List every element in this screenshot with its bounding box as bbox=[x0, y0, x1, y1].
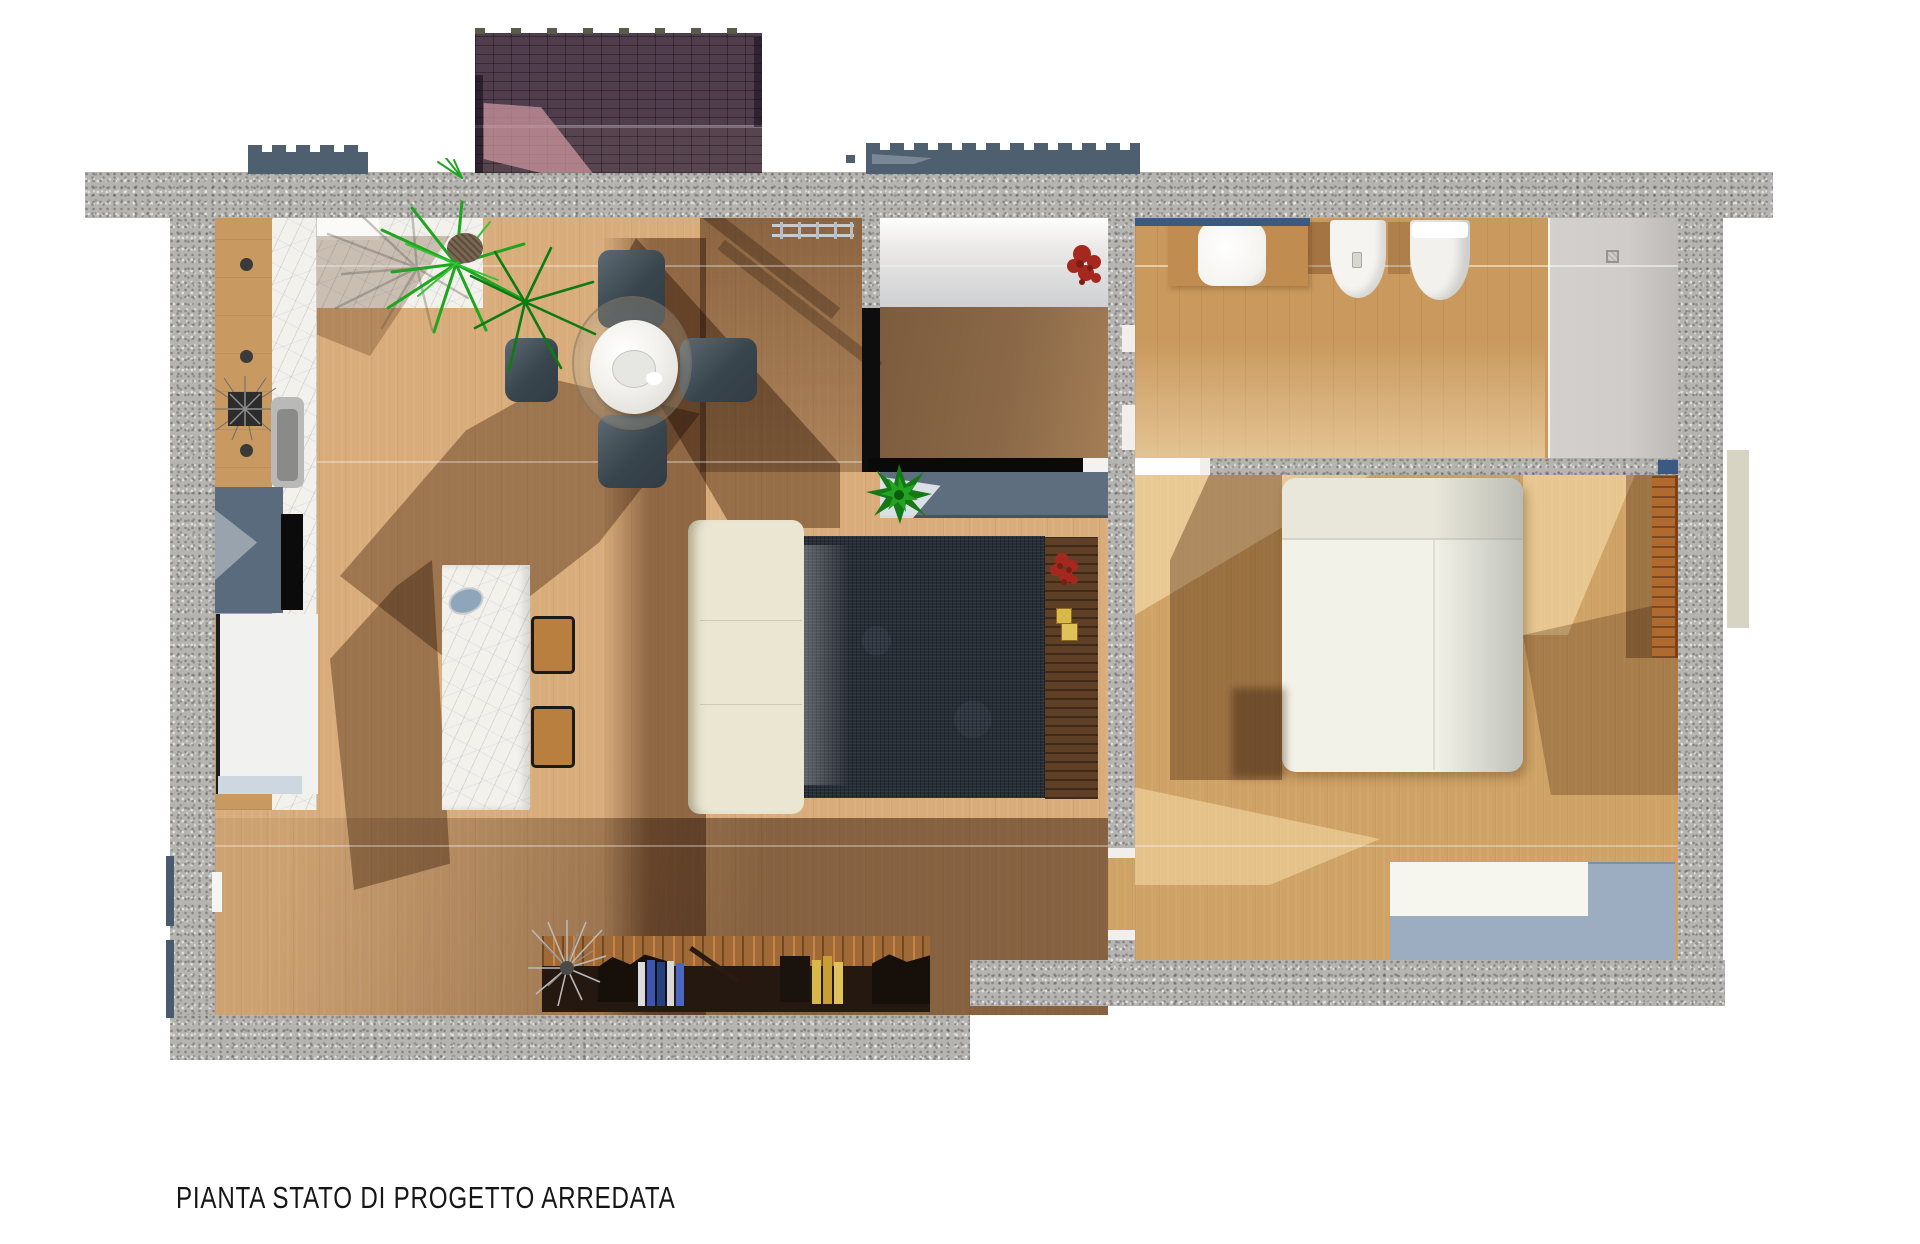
wall-right bbox=[1678, 218, 1723, 960]
entry-red-plant bbox=[1062, 240, 1108, 290]
balcony-door-jamb-left bbox=[212, 872, 222, 912]
sofa bbox=[688, 520, 804, 814]
wardrobe bbox=[1652, 466, 1678, 658]
washbasin bbox=[1198, 222, 1266, 286]
floor-plan-image: PIANTA STATO DI PROGETTO ARREDATA bbox=[0, 0, 1920, 1244]
book-spine-yellow-3 bbox=[834, 962, 843, 1004]
palm-pot bbox=[447, 233, 483, 263]
door-jamb-2 bbox=[1108, 930, 1135, 940]
roof-eave-tabs bbox=[475, 28, 762, 34]
plan-caption: PIANTA STATO DI PROGETTO ARREDATA bbox=[176, 1180, 676, 1216]
balcony-frame-outer-1 bbox=[166, 856, 174, 926]
console-red-plant bbox=[1046, 548, 1082, 590]
counter-knob-1 bbox=[240, 258, 253, 271]
bed-floor-shadow bbox=[1232, 688, 1286, 778]
book-spine-yellow-2 bbox=[823, 956, 832, 1004]
bed-shadow-side bbox=[1433, 478, 1523, 772]
toilet-tank-highlight bbox=[1412, 222, 1468, 238]
rug-sofa-shadow bbox=[804, 545, 850, 785]
divider-blue-end bbox=[1658, 460, 1678, 474]
wall-door-jamb-bath-1 bbox=[1122, 325, 1135, 352]
counter-knob-2 bbox=[240, 350, 253, 363]
dresser-white-top bbox=[1390, 862, 1588, 916]
pendant-lamp-highlight bbox=[646, 372, 662, 385]
wardrobe-shadow bbox=[1626, 466, 1652, 658]
window-frame-kitchen bbox=[248, 152, 368, 174]
balcony-frame-outer-2 bbox=[166, 940, 174, 1018]
black-cabinet bbox=[862, 307, 880, 472]
clothes-rack bbox=[772, 222, 854, 239]
palm-sprig-on-wall bbox=[436, 158, 466, 180]
toilet-shadow bbox=[1388, 222, 1410, 274]
bar-stool-1 bbox=[531, 616, 575, 674]
book-spine-blue-2 bbox=[657, 962, 665, 1006]
refrigerator-front-face bbox=[218, 776, 302, 794]
book-spine-white-1 bbox=[638, 962, 645, 1006]
bathroom-window-sill bbox=[1135, 218, 1310, 226]
wall-bottom-right bbox=[970, 960, 1725, 1006]
entry-hall-shadow-floor bbox=[880, 307, 1108, 458]
door-opening-floor bbox=[1108, 858, 1135, 930]
divider-door-jamb bbox=[1200, 458, 1210, 475]
window-frame-tick bbox=[846, 155, 855, 163]
shower-drain-icon bbox=[1606, 250, 1619, 263]
counter-knob-3 bbox=[240, 444, 253, 457]
wall-interior-vertical-stub bbox=[1108, 940, 1135, 962]
section-line-3 bbox=[215, 845, 1108, 847]
wall-entry-stub bbox=[862, 218, 880, 308]
console-candle-1 bbox=[1056, 608, 1072, 624]
book-spine-blue-1 bbox=[647, 960, 655, 1006]
wall-divider-bath-bed bbox=[1210, 458, 1678, 475]
door-jamb-1 bbox=[1108, 848, 1135, 858]
book-spine-white-2 bbox=[667, 961, 674, 1006]
entry-star-plant bbox=[866, 462, 932, 526]
roof-edge-right bbox=[754, 37, 762, 127]
wall-interior-vertical bbox=[1108, 218, 1135, 848]
exterior-radiator bbox=[1727, 450, 1749, 628]
section-line-bedroom bbox=[1135, 845, 1678, 847]
console-candle-2 bbox=[1061, 623, 1078, 641]
palm-plant-dark bbox=[465, 242, 600, 377]
cooktop-glass bbox=[281, 514, 303, 610]
roof-edge-left bbox=[475, 75, 483, 173]
bed-seam bbox=[1433, 540, 1435, 770]
kitchen-sink-basin bbox=[277, 409, 298, 481]
books-dark-group-2 bbox=[780, 956, 810, 1002]
bidet-shadow bbox=[1308, 222, 1332, 274]
sofa-seam-2 bbox=[700, 704, 802, 705]
wall-bottom-left bbox=[170, 1015, 970, 1060]
window-frame-entry bbox=[866, 150, 1140, 174]
sofa-seam-1 bbox=[700, 620, 802, 621]
book-spine-yellow-1 bbox=[812, 960, 821, 1004]
roof-canopy bbox=[475, 33, 762, 173]
wall-left bbox=[170, 218, 215, 1060]
shelf-silver-plant bbox=[528, 920, 606, 1008]
counter-basket-plant bbox=[212, 376, 278, 442]
book-spine-blue-3 bbox=[676, 963, 684, 1006]
wall-door-jamb-bath-2 bbox=[1122, 405, 1135, 450]
bar-stool-2 bbox=[531, 706, 575, 768]
refrigerator bbox=[216, 614, 318, 794]
bidet-faucet bbox=[1352, 252, 1362, 268]
bathroom-light-patch bbox=[1135, 340, 1545, 458]
